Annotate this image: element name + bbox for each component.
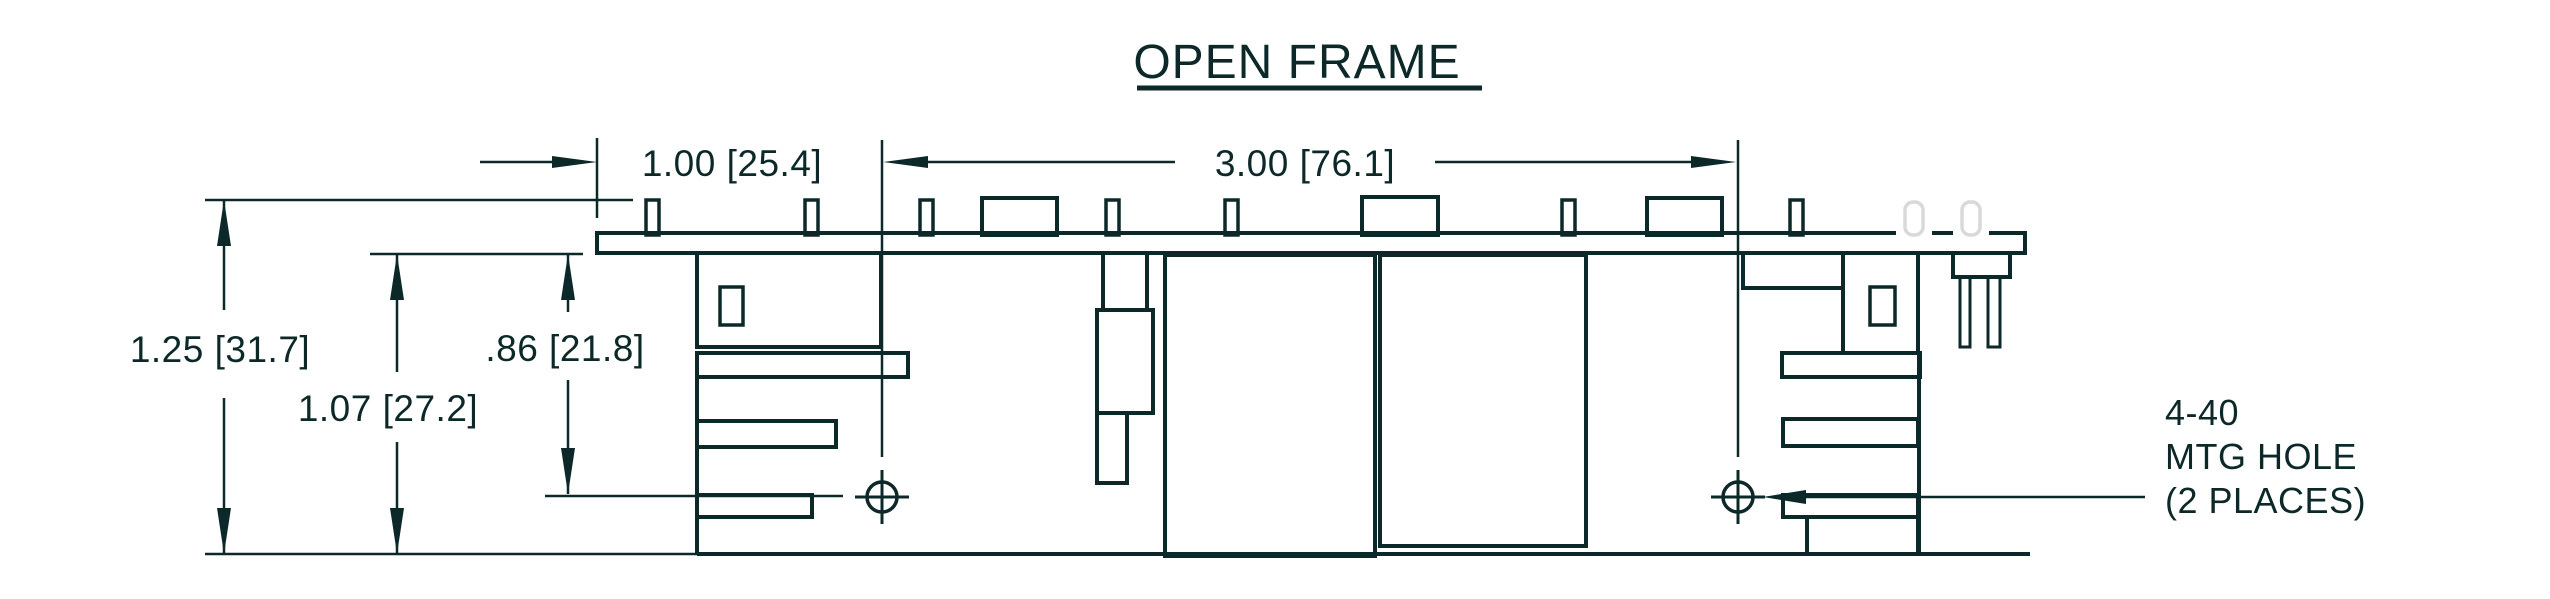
arrowhead-86-down	[561, 448, 575, 494]
pcb-pin	[1106, 200, 1119, 235]
arrowhead-300-left	[883, 156, 928, 168]
right-bottom-block	[1807, 517, 1918, 554]
drawing-canvas: OPEN FRAME1.00 [25.4]3.00 [76.1]1.25 [31…	[0, 0, 2550, 599]
right-notch-block	[1743, 253, 1843, 288]
arrowhead-125-up	[217, 200, 231, 246]
pcb-pin	[805, 200, 818, 235]
dim-label-300: 3.00 [76.1]	[1215, 143, 1395, 184]
top-component	[982, 198, 1057, 235]
left-block-window	[720, 287, 743, 325]
drawing-title: OPEN FRAME	[1133, 36, 1460, 89]
arrowhead-86-up	[561, 254, 575, 300]
pcb-pin	[1225, 200, 1238, 235]
left-block	[697, 253, 881, 347]
arrowhead-125-down	[217, 508, 231, 554]
left-heatsink-fin	[697, 495, 812, 517]
transformer-block-2	[1380, 255, 1586, 546]
arrowhead-300-right	[1691, 156, 1736, 168]
right-connector	[1953, 253, 2010, 277]
pcb-pin	[920, 200, 933, 235]
mid-component-leg	[1097, 413, 1127, 483]
arrowhead-100-right	[552, 156, 597, 168]
arrowhead-107-down	[390, 508, 404, 554]
dim-label-107: 1.07 [27.2]	[298, 388, 478, 429]
transformer-block-1	[1165, 255, 1375, 556]
note-line-1: 4-40	[2165, 392, 2239, 433]
connector-pin	[1960, 277, 1970, 347]
top-component	[1647, 198, 1722, 235]
right-block	[1843, 253, 1918, 353]
right-block-window	[1870, 287, 1895, 325]
pcb-pin	[1790, 200, 1803, 235]
top-component	[1362, 197, 1438, 235]
pcb-pin	[646, 200, 659, 235]
right-heatsink-fin	[1783, 419, 1918, 446]
left-flange-bar	[697, 353, 908, 377]
dim-label-100: 1.00 [25.4]	[642, 143, 822, 184]
mid-component-body	[1097, 310, 1153, 413]
schematic: OPEN FRAME1.00 [25.4]3.00 [76.1]1.25 [31…	[0, 0, 2550, 599]
note-line-3: (2 PLACES)	[2165, 480, 2366, 521]
connector-pin	[1988, 277, 2000, 347]
arrowhead-107-up	[390, 254, 404, 300]
left-heatsink-fin	[697, 421, 836, 447]
pcb-pin	[1562, 200, 1575, 235]
dim-label-125: 1.25 [31.7]	[130, 329, 310, 370]
dim-label-86: .86 [21.8]	[485, 328, 644, 369]
note-line-2: MTG HOLE	[2165, 436, 2357, 477]
right-heatsink-fin	[1782, 353, 1920, 377]
